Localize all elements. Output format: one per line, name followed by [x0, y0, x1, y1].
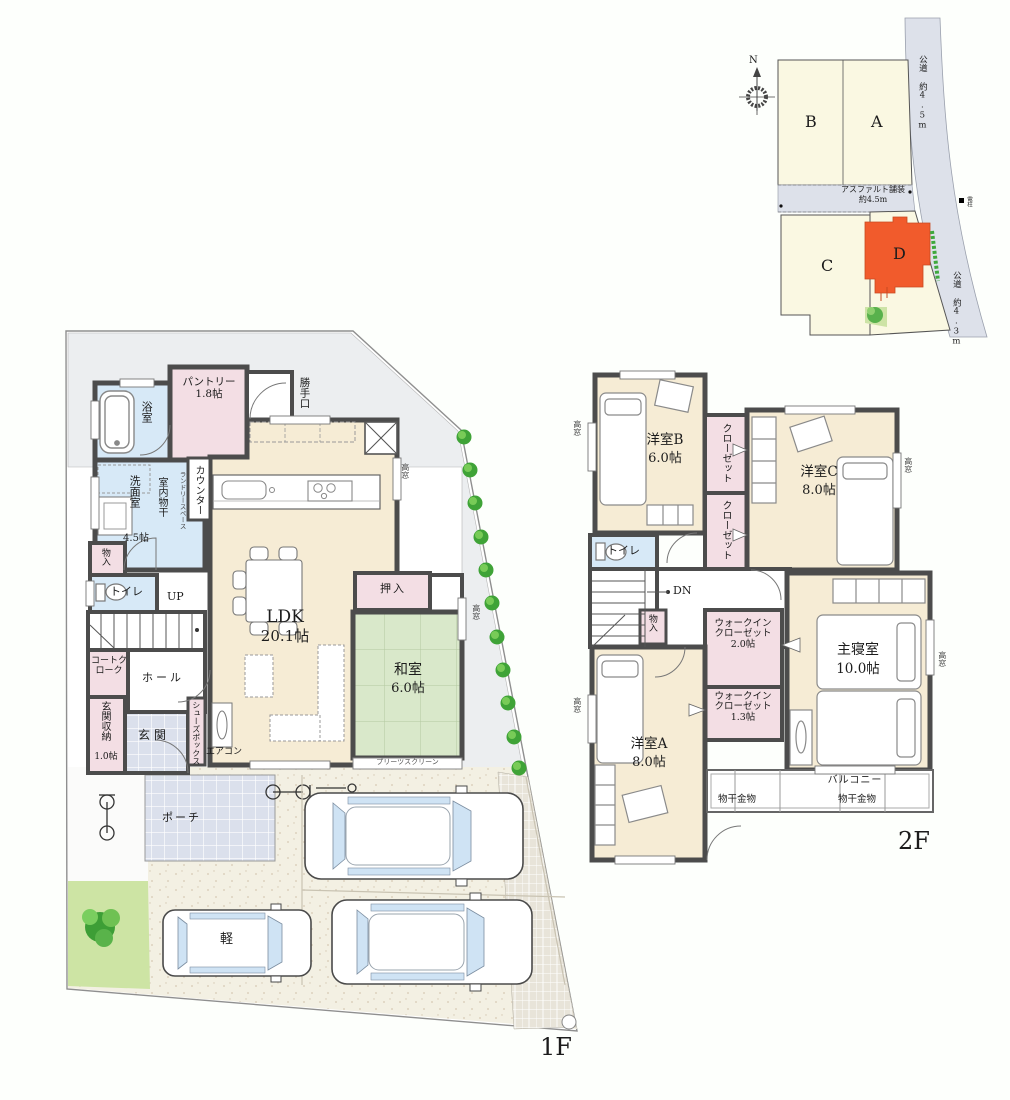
hanger-label-1: 物干金物 — [718, 795, 756, 805]
laundry-space-label: ランドリースペース — [178, 471, 185, 537]
lot-c-label: C — [821, 257, 833, 275]
refrigerator-icon — [365, 422, 397, 454]
high-window-label-6: 高窓 — [937, 651, 946, 681]
pantry-label: パントリー 1.8帖 — [172, 377, 246, 400]
kitchen-counter — [213, 475, 380, 509]
room-a-name: 洋室A — [607, 737, 691, 752]
washitsu-size: 6.0帖 — [376, 682, 440, 696]
ldk-size: 20.1帖 — [240, 628, 330, 645]
closet-2-label: クローゼット — [720, 500, 731, 566]
balcony-label: バルコニー — [813, 775, 897, 786]
counter-label: カウンター — [193, 465, 204, 523]
window-bay — [430, 575, 462, 612]
washroom-size: 4.5帖 — [116, 533, 156, 544]
entrance-room — [125, 712, 188, 773]
room-c-size: 8.0帖 — [777, 484, 861, 498]
pole-label: 電柱 — [966, 196, 972, 212]
entrance-label: 玄関 — [138, 729, 170, 742]
pantry-size: 1.8帖 — [172, 389, 246, 401]
side-approach — [68, 767, 148, 881]
entrance-storage-size: 1.0帖 — [87, 753, 125, 763]
road-surface-label: アスファルト舗装 — [835, 186, 911, 195]
hall-label: ホール — [142, 672, 184, 684]
utility-pole-icon — [959, 198, 964, 203]
aircon-label: エアコン — [206, 748, 242, 758]
lot-c — [781, 215, 870, 335]
high-window-label-3: 高窓 — [572, 420, 581, 450]
road-width-label: 約4.5m — [835, 196, 911, 205]
room-b-size: 6.0帖 — [623, 452, 707, 466]
porch-label: ポーチ — [162, 812, 201, 824]
compass-icon — [739, 67, 775, 115]
bath-label: 浴室 — [140, 401, 152, 445]
kei-car-icon — [163, 904, 311, 982]
pantry-name: パントリー — [172, 377, 246, 389]
floor2-plan: 洋室B 6.0帖 クローゼット クローゼット 洋室C 8.0帖 トイレ DN 物… — [585, 365, 985, 880]
backdoor-label: 勝手口 — [298, 377, 310, 437]
bathtub-icon — [100, 391, 134, 453]
sink-icon — [222, 481, 266, 499]
road-right-top-label: 公道 約4.5m — [917, 55, 926, 125]
wic-1-label: ウォークインクローゼット 2.0帖 — [710, 619, 776, 650]
lot-d-label: D — [893, 245, 906, 263]
master-size: 10.0帖 — [813, 662, 903, 677]
high-window-label-1: 高窓 — [400, 463, 409, 493]
toilet-label-1f: トイレ — [110, 586, 143, 598]
site-plan: N B A C D 公道 約4.5m 公道 約4.3m アスファルト舗装 約4.… — [735, 15, 1005, 345]
car-icon-2 — [332, 893, 532, 991]
floor1-plan: 浴室 パントリー 1.8帖 勝手口 洗面室 4.5帖 室内物干 カウンター ラン… — [60, 325, 590, 1060]
lot-b-label: B — [805, 113, 817, 131]
backdoor-alcove — [247, 372, 292, 422]
road-right-bottom-label: 公道 約4.3m — [951, 271, 960, 337]
pleats-screen-label: プリーツスクリーン — [354, 759, 461, 767]
north-label: N — [749, 55, 758, 66]
oshiire-label: 押入 — [360, 583, 426, 595]
storage-label-1f: 物入 — [99, 548, 109, 574]
hanger-label-2: 物干金物 — [838, 795, 876, 805]
car-icon-1 — [305, 786, 523, 886]
floor2-title: 2F — [898, 828, 930, 854]
wic-2-label: ウォークインクローゼット 1.3帖 — [710, 692, 776, 723]
high-window-label-2: 高窓 — [471, 604, 480, 634]
master-name: 主寝室 — [813, 643, 903, 658]
ldk-name: LDK — [245, 608, 325, 627]
lot-ab — [778, 60, 912, 185]
high-window-label-4: 高窓 — [572, 697, 581, 727]
floor-plan-sheet: N B A C D 公道 約4.5m 公道 約4.3m アスファルト舗装 約4.… — [0, 0, 1010, 1100]
indoor-drying-label: 室内物干 — [156, 477, 167, 533]
washitsu-name: 和室 — [380, 663, 436, 678]
room-b-name: 洋室B — [623, 433, 707, 448]
high-window-label-5: 高窓 — [903, 457, 912, 487]
aircon-unit-icon — [212, 703, 232, 747]
entrance-storage-name: 玄関収納 — [99, 701, 110, 751]
stairs-1f — [88, 612, 205, 650]
bush-icon — [867, 307, 875, 315]
room-c-name: 洋室C — [777, 465, 861, 480]
shoebox-label: シューズボックス — [191, 701, 200, 763]
lot-a-label: A — [871, 113, 883, 131]
closet-1-label: クローゼット — [720, 423, 731, 489]
up-label: UP — [167, 591, 184, 603]
coat-closet-label: コートクローク — [87, 657, 131, 677]
wic-2-size: 1.3帖 — [710, 713, 776, 723]
room-a-size: 8.0帖 — [607, 756, 691, 770]
wic-1-name: ウォークインクローゼット — [714, 618, 771, 639]
wic-1-size: 2.0帖 — [710, 640, 776, 650]
dn-label: DN — [673, 585, 691, 597]
storage-label-2f: 物入 — [646, 614, 656, 642]
manhole-icon — [562, 1015, 576, 1029]
washroom-name: 洗面室 — [128, 475, 140, 531]
kei-car-label: 軽 — [220, 933, 233, 947]
wic-2-name: ウォークインクローゼット — [714, 691, 771, 712]
site-plan-drawing — [735, 15, 1005, 345]
toilet-label-2f: トイレ — [607, 545, 640, 557]
floor1-title: 1F — [540, 1034, 572, 1060]
